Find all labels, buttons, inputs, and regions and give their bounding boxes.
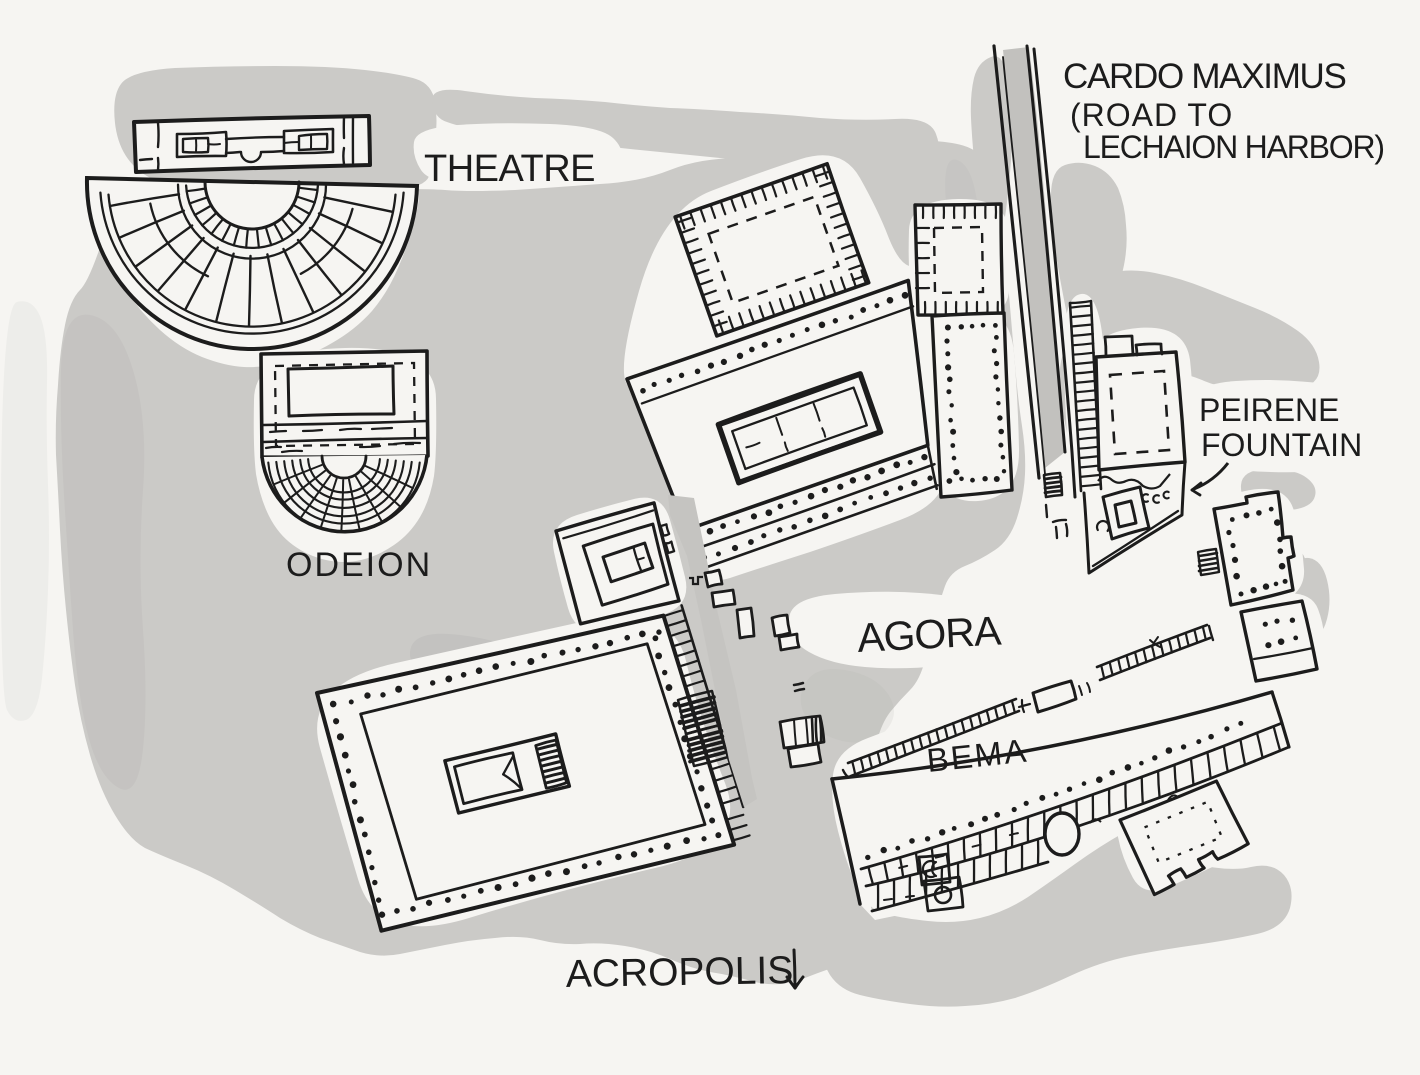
svg-text:ODEION: ODEION (286, 546, 432, 584)
svg-text:CARDO MAXIMUS: CARDO MAXIMUS (1063, 57, 1346, 96)
svg-text:ACROPOLIS: ACROPOLIS (565, 949, 793, 996)
svg-text:PEIRENE: PEIRENE (1199, 392, 1339, 428)
svg-text:(ROAD TO: (ROAD TO (1070, 97, 1233, 133)
svg-text:AGORA: AGORA (856, 607, 1003, 661)
svg-text:LECHAION HARBOR): LECHAION HARBOR) (1083, 129, 1384, 165)
svg-text:FOUNTAIN: FOUNTAIN (1201, 427, 1362, 463)
svg-text:THEATRE: THEATRE (424, 148, 595, 190)
